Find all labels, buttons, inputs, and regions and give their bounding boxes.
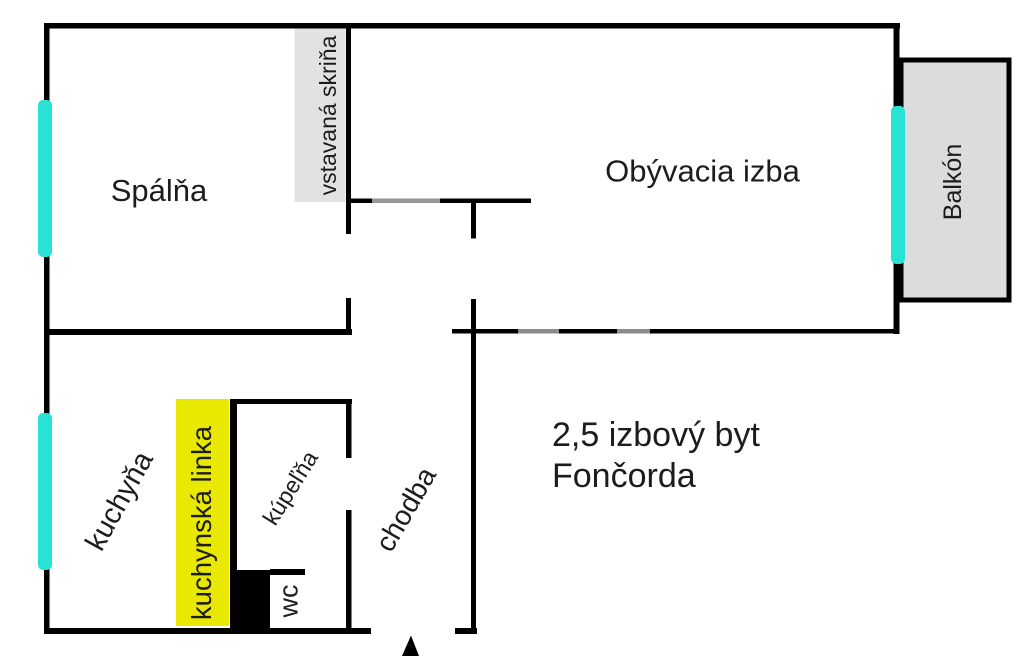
svg-text:vstavaná skriňa: vstavaná skriňa <box>315 35 341 195</box>
svg-text:2,5 izbový byt: 2,5 izbový byt <box>552 416 760 454</box>
svg-text:Obývacia izba: Obývacia izba <box>605 154 800 189</box>
svg-text:kuchynská linka: kuchynská linka <box>186 425 217 620</box>
svg-text:kuchyňa: kuchyňa <box>79 445 160 556</box>
svg-text:wc: wc <box>274 585 304 619</box>
svg-text:chodba: chodba <box>369 461 442 556</box>
svg-text:kúpeľňa: kúpeľňa <box>257 446 323 530</box>
svg-text:Balkón: Balkón <box>939 144 967 220</box>
svg-text:Fončorda: Fončorda <box>552 457 696 495</box>
svg-text:Spálňa: Spálňa <box>111 173 208 208</box>
